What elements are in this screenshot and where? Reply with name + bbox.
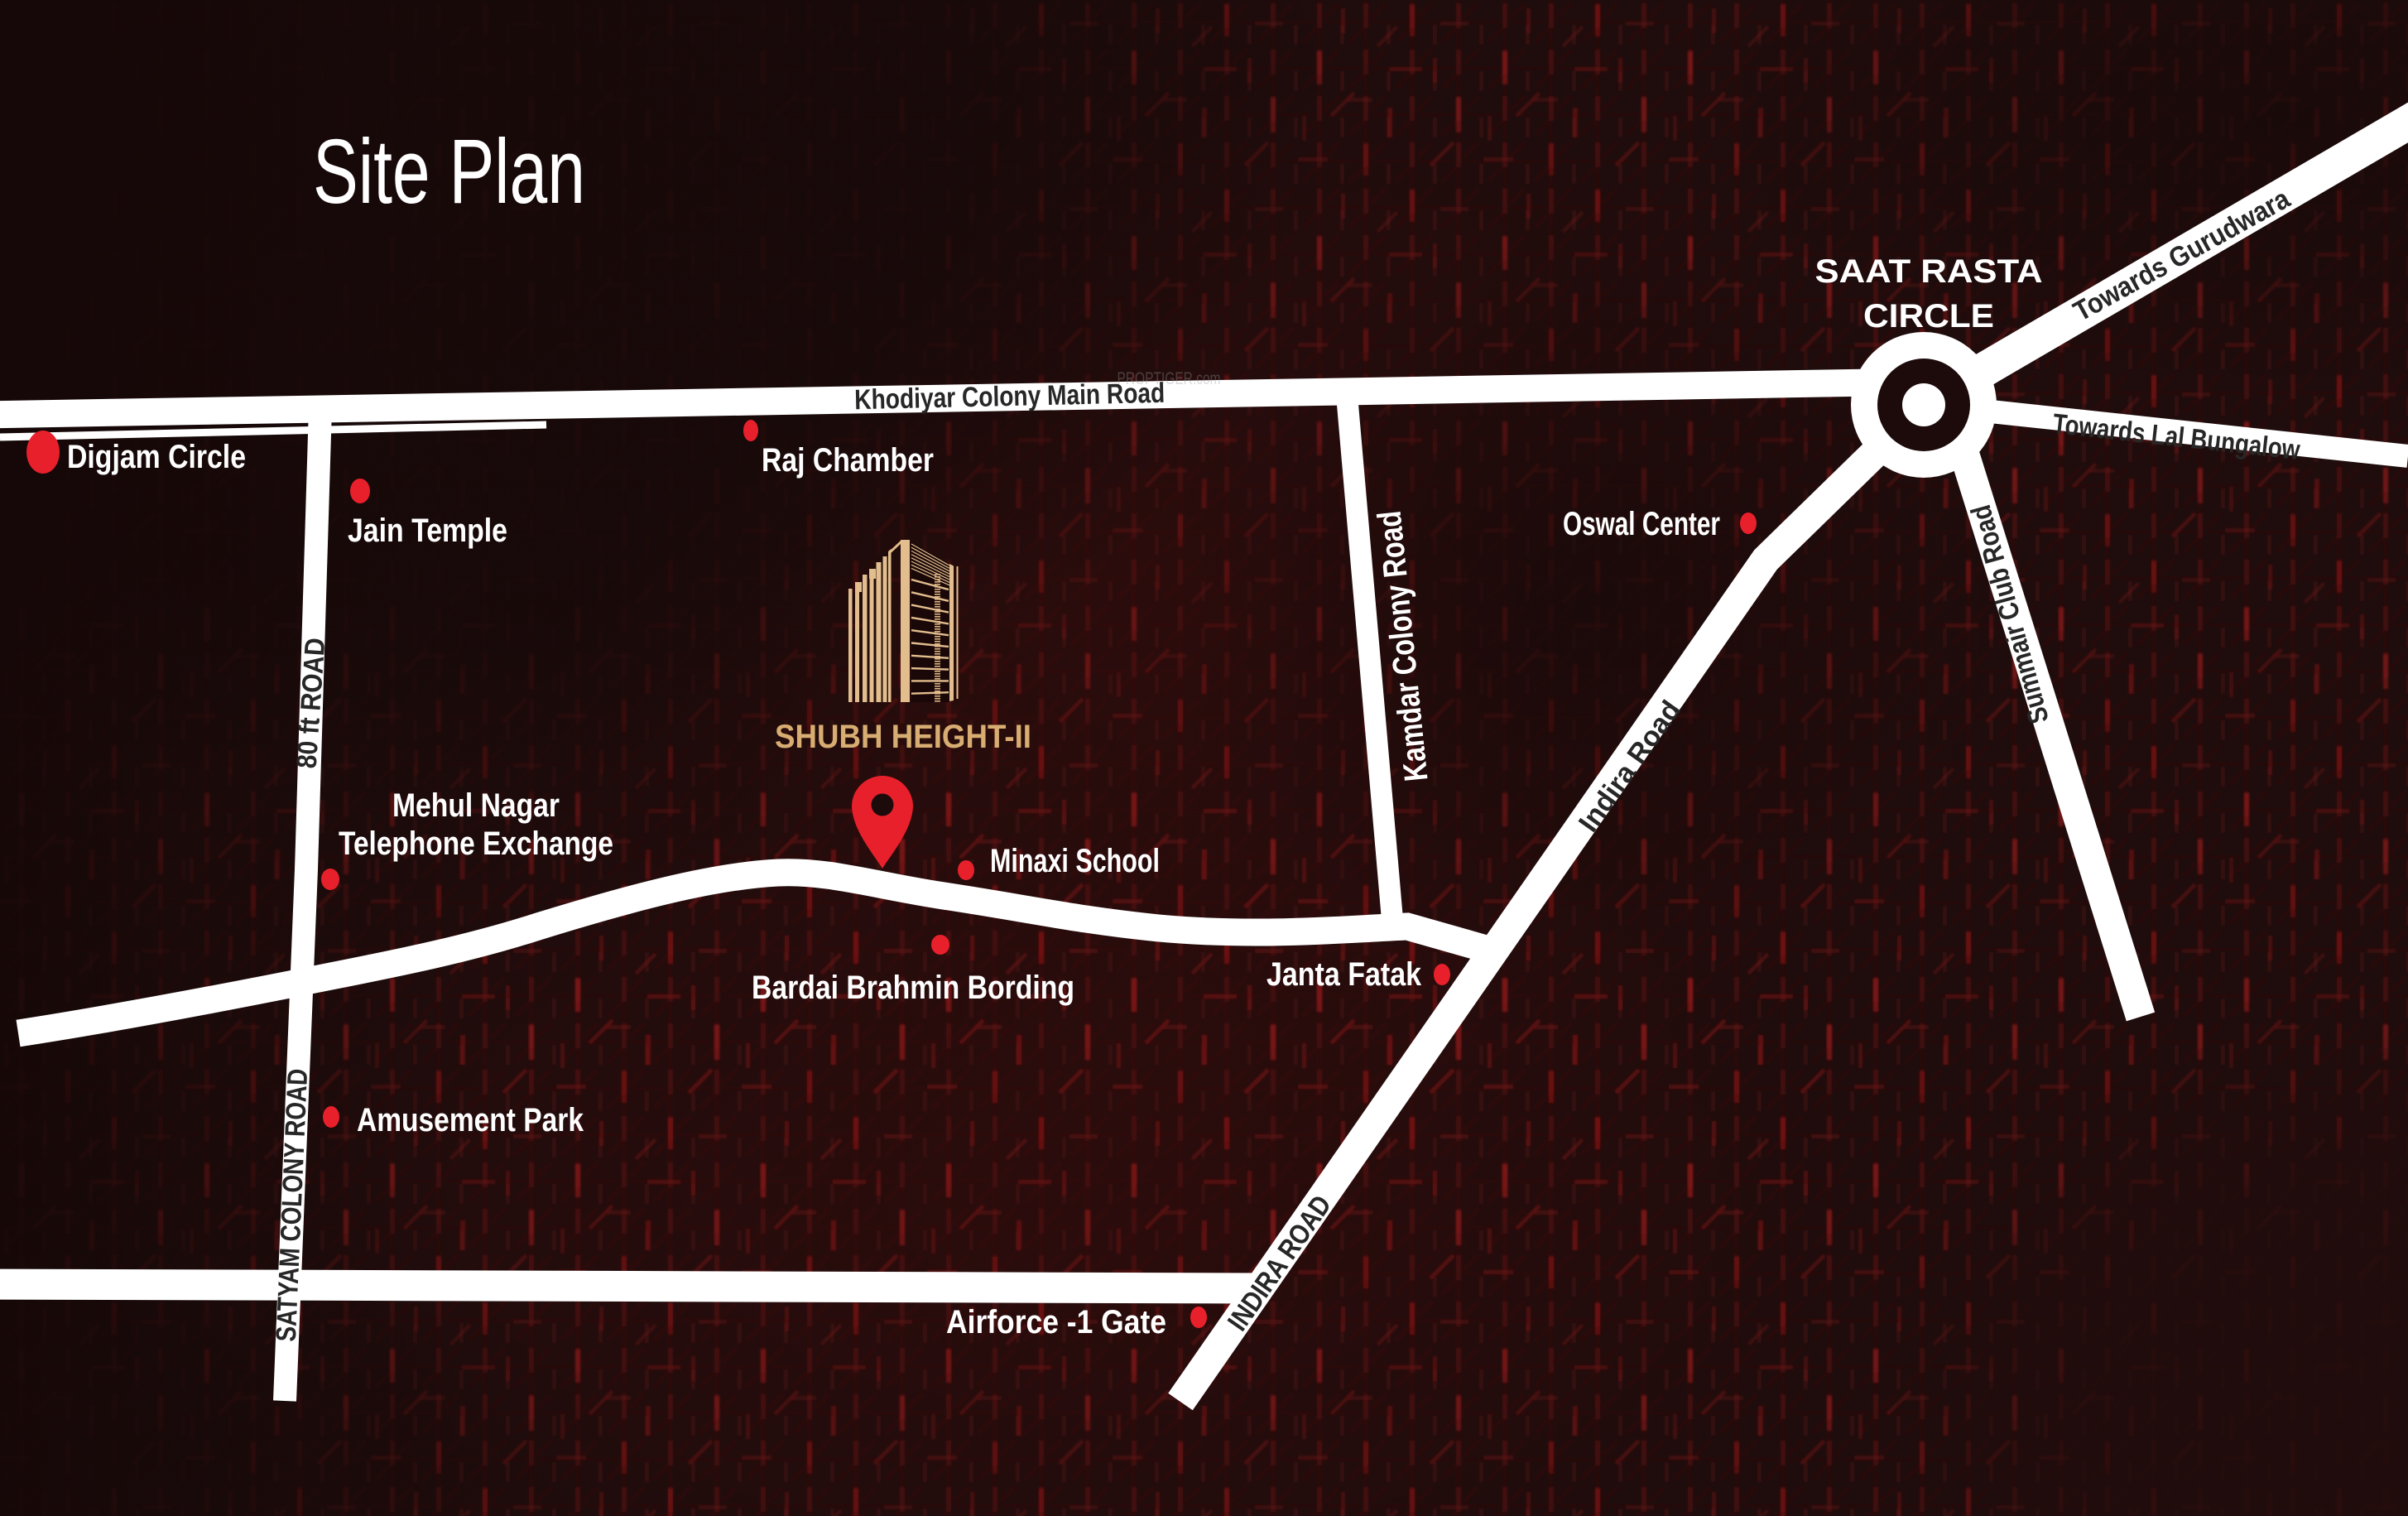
svg-text:CIRCLE: CIRCLE xyxy=(1863,298,1994,334)
svg-text:Site Plan: Site Plan xyxy=(313,121,585,223)
svg-text:SHUBH HEIGHT-II: SHUBH HEIGHT-II xyxy=(775,719,1031,755)
svg-text:Amusement Park: Amusement Park xyxy=(357,1102,584,1138)
svg-text:Oswal Center: Oswal Center xyxy=(1563,506,1720,542)
svg-text:PROPTIGER.com: PROPTIGER.com xyxy=(1117,369,1221,388)
svg-text:Mehul Nagar: Mehul Nagar xyxy=(392,787,560,824)
svg-text:Telephone Exchange: Telephone Exchange xyxy=(339,825,613,862)
svg-text:Janta Fatak: Janta Fatak xyxy=(1266,956,1422,993)
svg-text:Raj Chamber: Raj Chamber xyxy=(762,442,934,479)
svg-text:Jain Temple: Jain Temple xyxy=(348,513,507,549)
svg-text:Digjam Circle: Digjam Circle xyxy=(67,439,246,475)
svg-text:Minaxi School: Minaxi School xyxy=(990,843,1160,879)
svg-text:SAAT RASTA: SAAT RASTA xyxy=(1815,253,2043,290)
svg-text:Bardai Brahmin Bording: Bardai Brahmin Bording xyxy=(752,970,1074,1006)
svg-text:Airforce -1 Gate: Airforce -1 Gate xyxy=(946,1304,1166,1340)
